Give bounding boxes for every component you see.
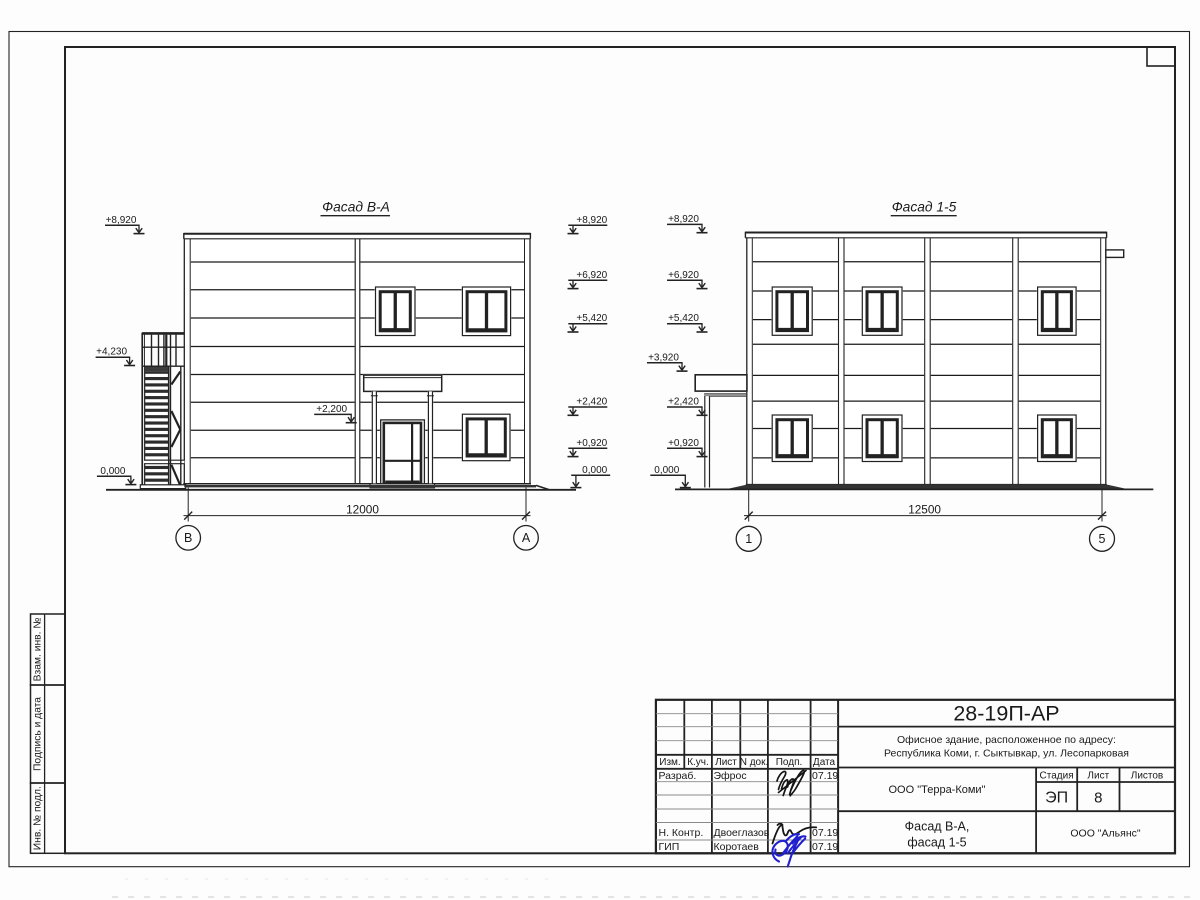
svg-text:+6,920: +6,920 [668, 270, 699, 281]
svg-text:Лист: Лист [1087, 771, 1109, 782]
svg-text:+8,920: +8,920 [576, 215, 607, 226]
svg-text:Фасад 1-5: Фасад 1-5 [892, 200, 957, 215]
svg-text:0,000: 0,000 [100, 466, 125, 477]
svg-text:+4,230: +4,230 [96, 347, 127, 358]
svg-text:0,000: 0,000 [654, 465, 679, 476]
svg-text:ООО "Терра-Коми": ООО "Терра-Коми" [888, 784, 985, 796]
svg-text:ЭП: ЭП [1045, 790, 1068, 807]
svg-text:ГИП: ГИП [659, 841, 680, 853]
svg-text:А: А [522, 531, 531, 545]
svg-text:фасад 1-5: фасад 1-5 [907, 836, 966, 850]
svg-text:07.19: 07.19 [812, 841, 838, 853]
svg-text:1: 1 [745, 532, 752, 546]
svg-text:N док.: N док. [740, 757, 769, 768]
svg-text:Фасад В-А,: Фасад В-А, [905, 820, 970, 834]
svg-text:Стадия: Стадия [1040, 771, 1074, 782]
svg-text:Подп.: Подп. [776, 757, 803, 768]
svg-text:Фасад В-А: Фасад В-А [322, 200, 390, 215]
svg-text:В: В [184, 531, 192, 545]
svg-text:07.19: 07.19 [812, 827, 838, 839]
svg-text:ООО "Альянс": ООО "Альянс" [1070, 828, 1140, 840]
svg-text:+0,920: +0,920 [668, 438, 699, 449]
svg-text:Дата: Дата [813, 757, 836, 768]
svg-text:+2,420: +2,420 [668, 397, 699, 408]
svg-text:Инв. № подл.: Инв. № подл. [33, 786, 44, 850]
svg-text:Лист: Лист [715, 757, 737, 768]
svg-text:+5,420: +5,420 [576, 313, 607, 324]
svg-text:Коротаев: Коротаев [714, 841, 760, 853]
svg-text:07.19: 07.19 [812, 770, 838, 782]
svg-text:+8,920: +8,920 [106, 215, 137, 226]
svg-text:Н. Контр.: Н. Контр. [659, 827, 704, 839]
svg-text:+0,920: +0,920 [576, 438, 607, 449]
svg-text:+5,420: +5,420 [668, 313, 699, 324]
svg-text:0,000: 0,000 [582, 465, 607, 476]
svg-text:12000: 12000 [346, 503, 379, 517]
svg-text:5: 5 [1099, 532, 1106, 546]
svg-text:Эфрос: Эфрос [714, 770, 747, 782]
svg-text:+2,420: +2,420 [576, 397, 607, 408]
svg-text:+6,920: +6,920 [576, 270, 607, 281]
svg-text:28-19П-АР: 28-19П-АР [953, 702, 1059, 726]
svg-text:К.уч.: К.уч. [687, 757, 709, 768]
svg-text:Разраб.: Разраб. [659, 770, 697, 782]
svg-text:Изм.: Изм. [659, 757, 680, 768]
svg-text:Двоеглазов: Двоеглазов [714, 827, 770, 839]
svg-text:12500: 12500 [908, 503, 941, 517]
svg-text:Взам. инв. №: Взам. инв. № [33, 618, 44, 682]
svg-text:+2,200: +2,200 [316, 404, 347, 415]
svg-text:+3,920: +3,920 [648, 352, 679, 363]
svg-text:+8,920: +8,920 [668, 214, 699, 225]
svg-text:Республика Коми, г. Сыктывкар,: Республика Коми, г. Сыктывкар, ул. Лесоп… [884, 748, 1129, 760]
svg-text:Офисное здание, расположенное: Офисное здание, расположенное по адресу: [897, 734, 1116, 746]
svg-text:Подпись и дата: Подпись и дата [33, 697, 44, 771]
svg-text:Листов: Листов [1131, 771, 1164, 782]
svg-text:8: 8 [1094, 790, 1102, 807]
